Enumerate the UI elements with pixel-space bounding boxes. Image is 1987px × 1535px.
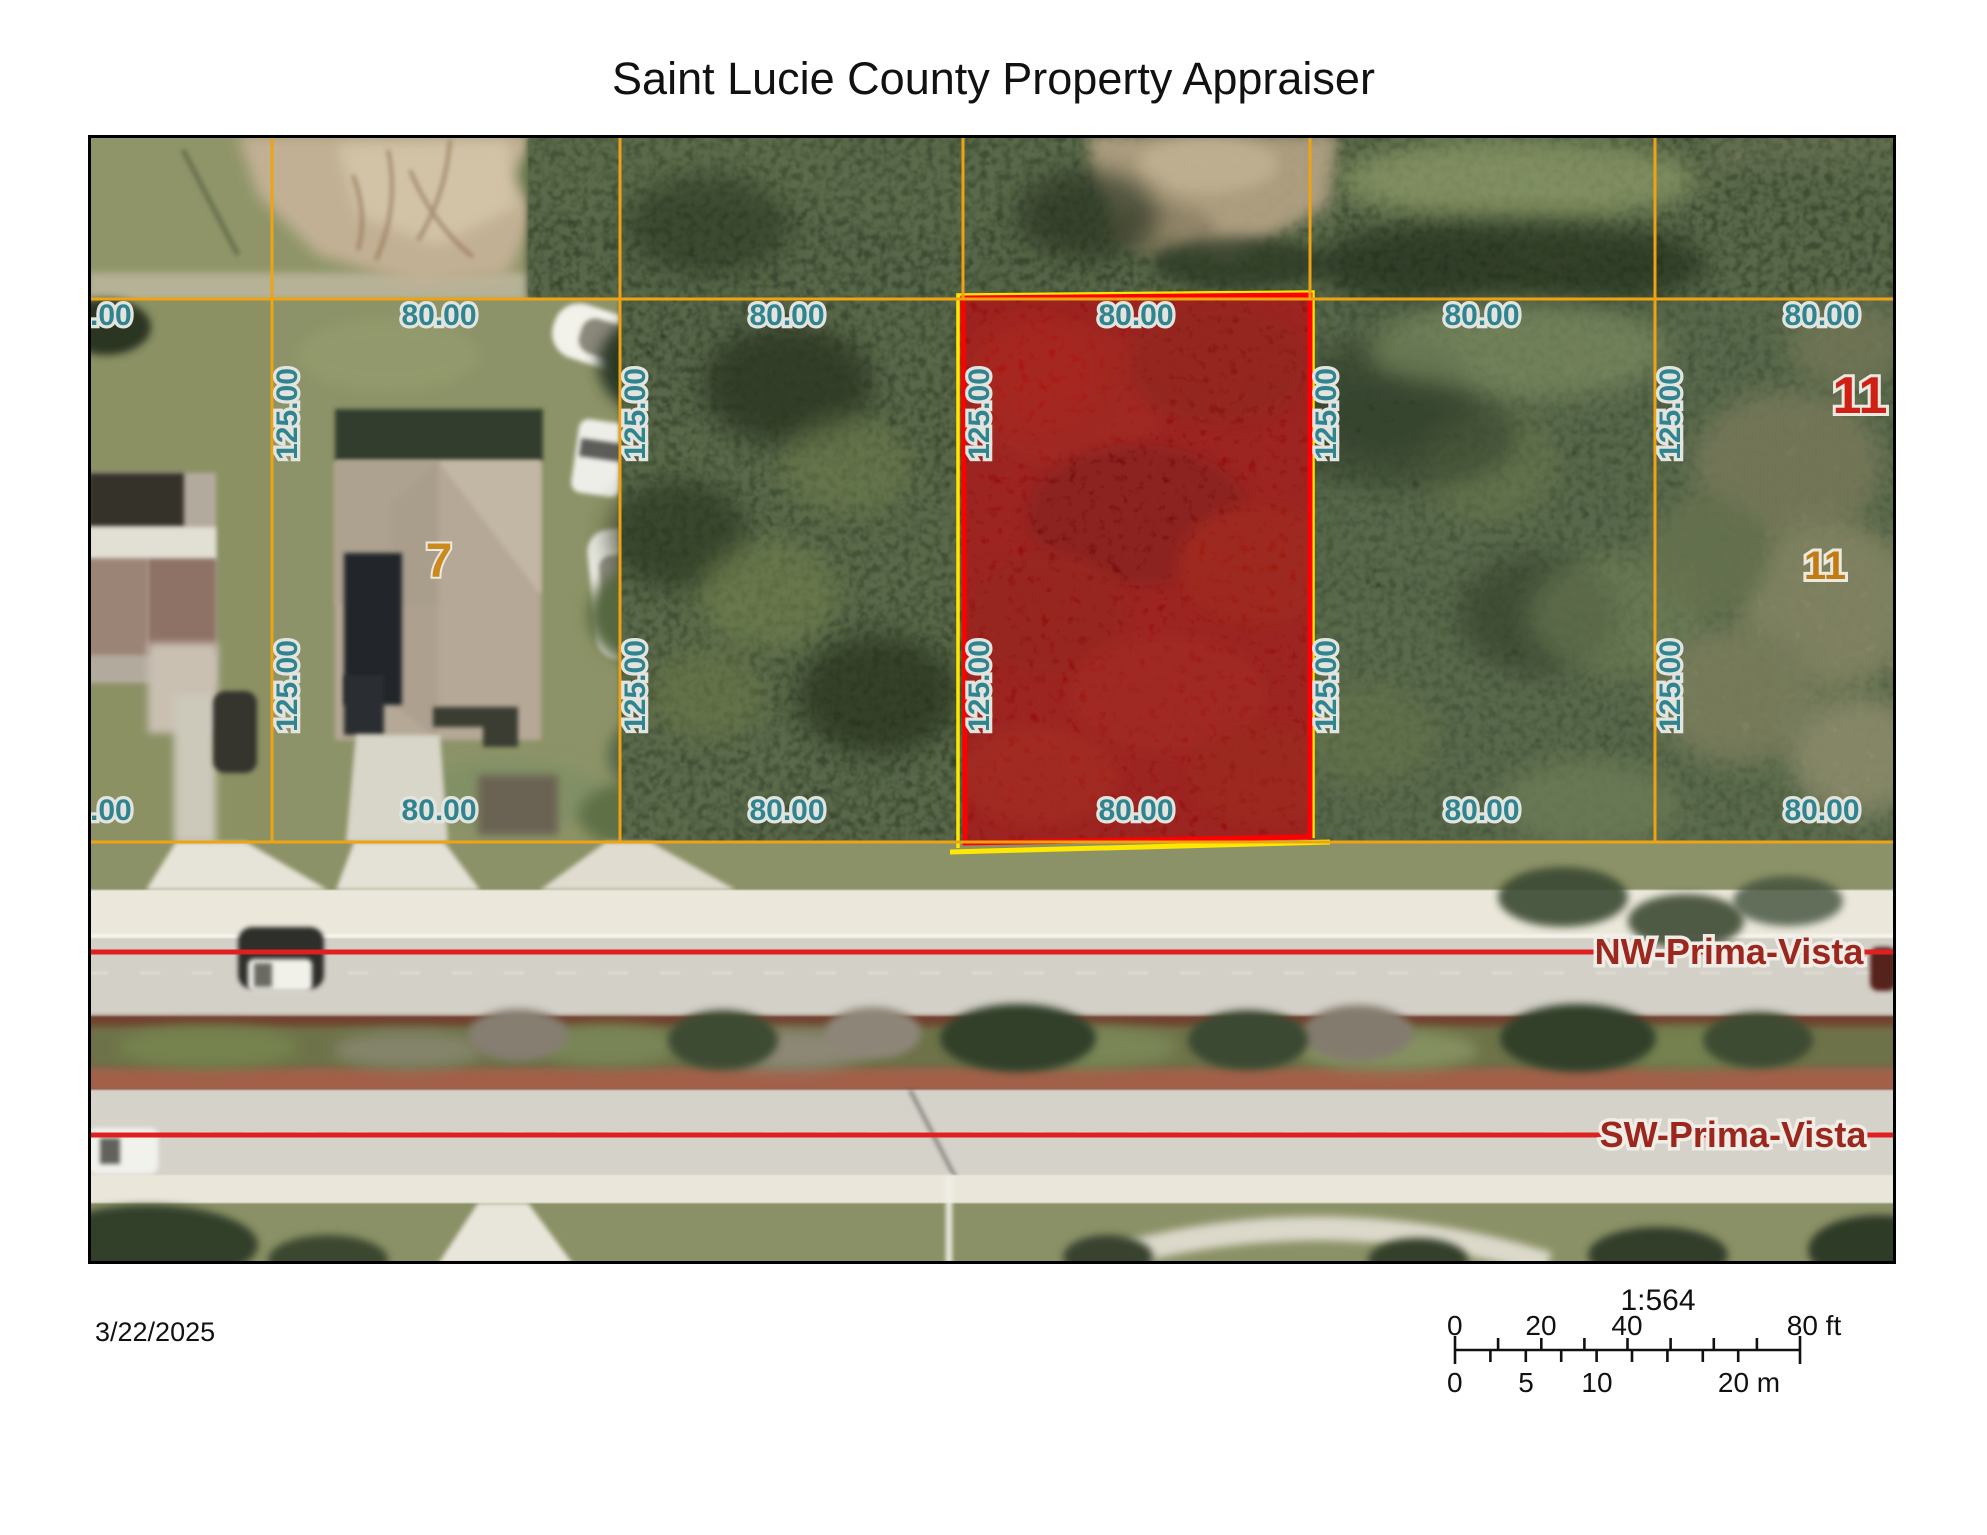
svg-text:125.00: 125.00 bbox=[619, 368, 652, 460]
svg-text:NW-Prima-Vista: NW-Prima-Vista bbox=[1595, 931, 1865, 972]
svg-text:11: 11 bbox=[1833, 367, 1888, 425]
svg-text:125.00: 125.00 bbox=[1654, 640, 1687, 732]
svg-text:0: 0 bbox=[1447, 1310, 1463, 1341]
svg-text:80.00: 80.00 bbox=[1098, 299, 1173, 332]
svg-text:125.00: 125.00 bbox=[1310, 640, 1343, 732]
svg-text:11: 11 bbox=[1804, 544, 1846, 588]
svg-text:80.00: 80.00 bbox=[1444, 794, 1519, 827]
svg-text:7: 7 bbox=[426, 535, 453, 588]
svg-text:80.00: 80.00 bbox=[749, 794, 824, 827]
svg-text:80 ft: 80 ft bbox=[1787, 1310, 1842, 1341]
svg-text:5: 5 bbox=[1518, 1367, 1534, 1398]
svg-text:80.00: 80.00 bbox=[401, 794, 476, 827]
svg-text:125.00: 125.00 bbox=[1310, 368, 1343, 460]
svg-text:20: 20 bbox=[1525, 1310, 1556, 1341]
svg-text:125.00: 125.00 bbox=[271, 368, 304, 460]
svg-text:80.00: 80.00 bbox=[1784, 794, 1859, 827]
svg-text:125.00: 125.00 bbox=[271, 640, 304, 732]
svg-text:.00: .00 bbox=[90, 299, 132, 332]
svg-text:125.00: 125.00 bbox=[963, 640, 996, 732]
svg-text:40: 40 bbox=[1611, 1310, 1642, 1341]
svg-text:80.00: 80.00 bbox=[1784, 299, 1859, 332]
svg-text:80.00: 80.00 bbox=[401, 299, 476, 332]
svg-text:125.00: 125.00 bbox=[1654, 368, 1687, 460]
svg-text:125.00: 125.00 bbox=[619, 640, 652, 732]
svg-text:SW-Prima-Vista: SW-Prima-Vista bbox=[1600, 1114, 1868, 1155]
svg-text:80.00: 80.00 bbox=[749, 299, 824, 332]
svg-text:80.00: 80.00 bbox=[1444, 299, 1519, 332]
svg-text:20 m: 20 m bbox=[1718, 1367, 1780, 1398]
svg-text:125.00: 125.00 bbox=[963, 368, 996, 460]
svg-text:.00: .00 bbox=[90, 794, 132, 827]
svg-text:0: 0 bbox=[1447, 1367, 1463, 1398]
svg-text:10: 10 bbox=[1581, 1367, 1612, 1398]
svg-text:80.00: 80.00 bbox=[1098, 794, 1173, 827]
